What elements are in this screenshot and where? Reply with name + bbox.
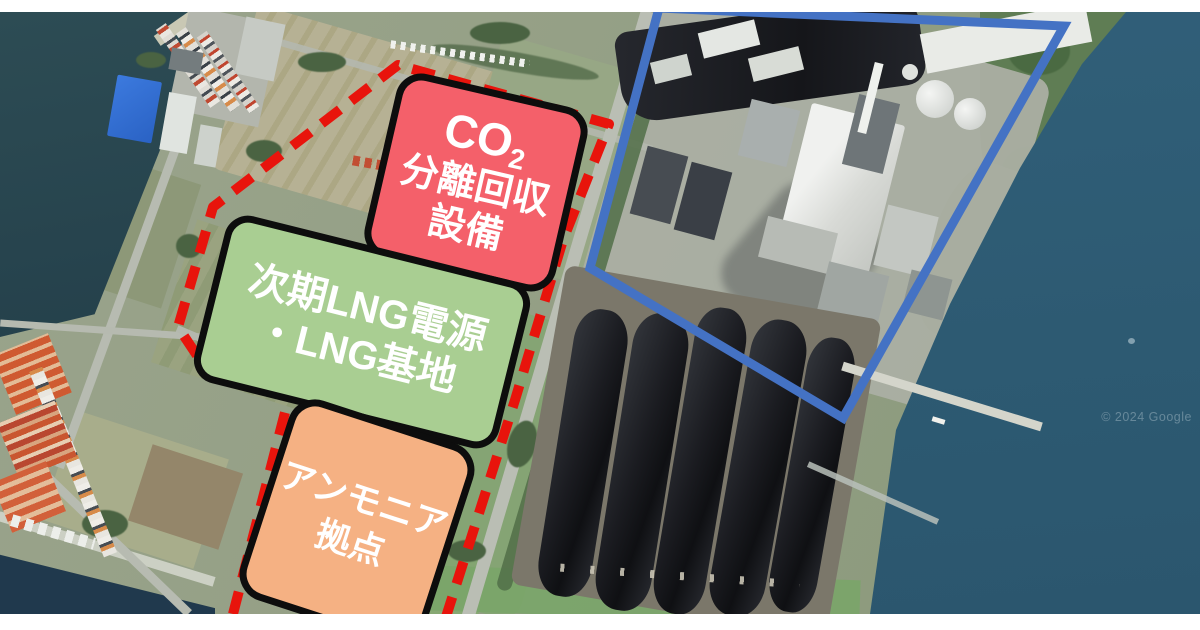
blue-boundary	[590, 12, 1064, 418]
ogp-image-canvas: © 2024 Google CO2 分離回収 設備 次期LNG電源 ・LNG基地…	[0, 0, 1200, 630]
satellite-map: © 2024 Google CO2 分離回収 設備 次期LNG電源 ・LNG基地…	[0, 12, 1200, 614]
boundary-overlay	[0, 12, 1200, 614]
